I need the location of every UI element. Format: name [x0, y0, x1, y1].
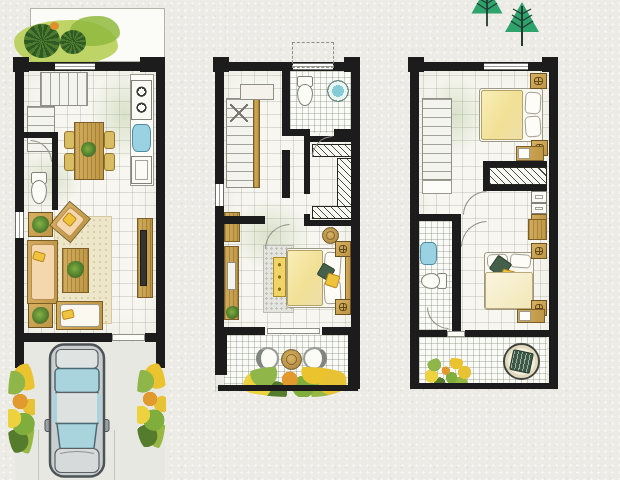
pine-tree-small [468, 0, 506, 28]
pine-tree-large [502, 2, 542, 48]
decorations [0, 0, 620, 480]
townhouse-floor-plan-illustration [0, 0, 620, 480]
